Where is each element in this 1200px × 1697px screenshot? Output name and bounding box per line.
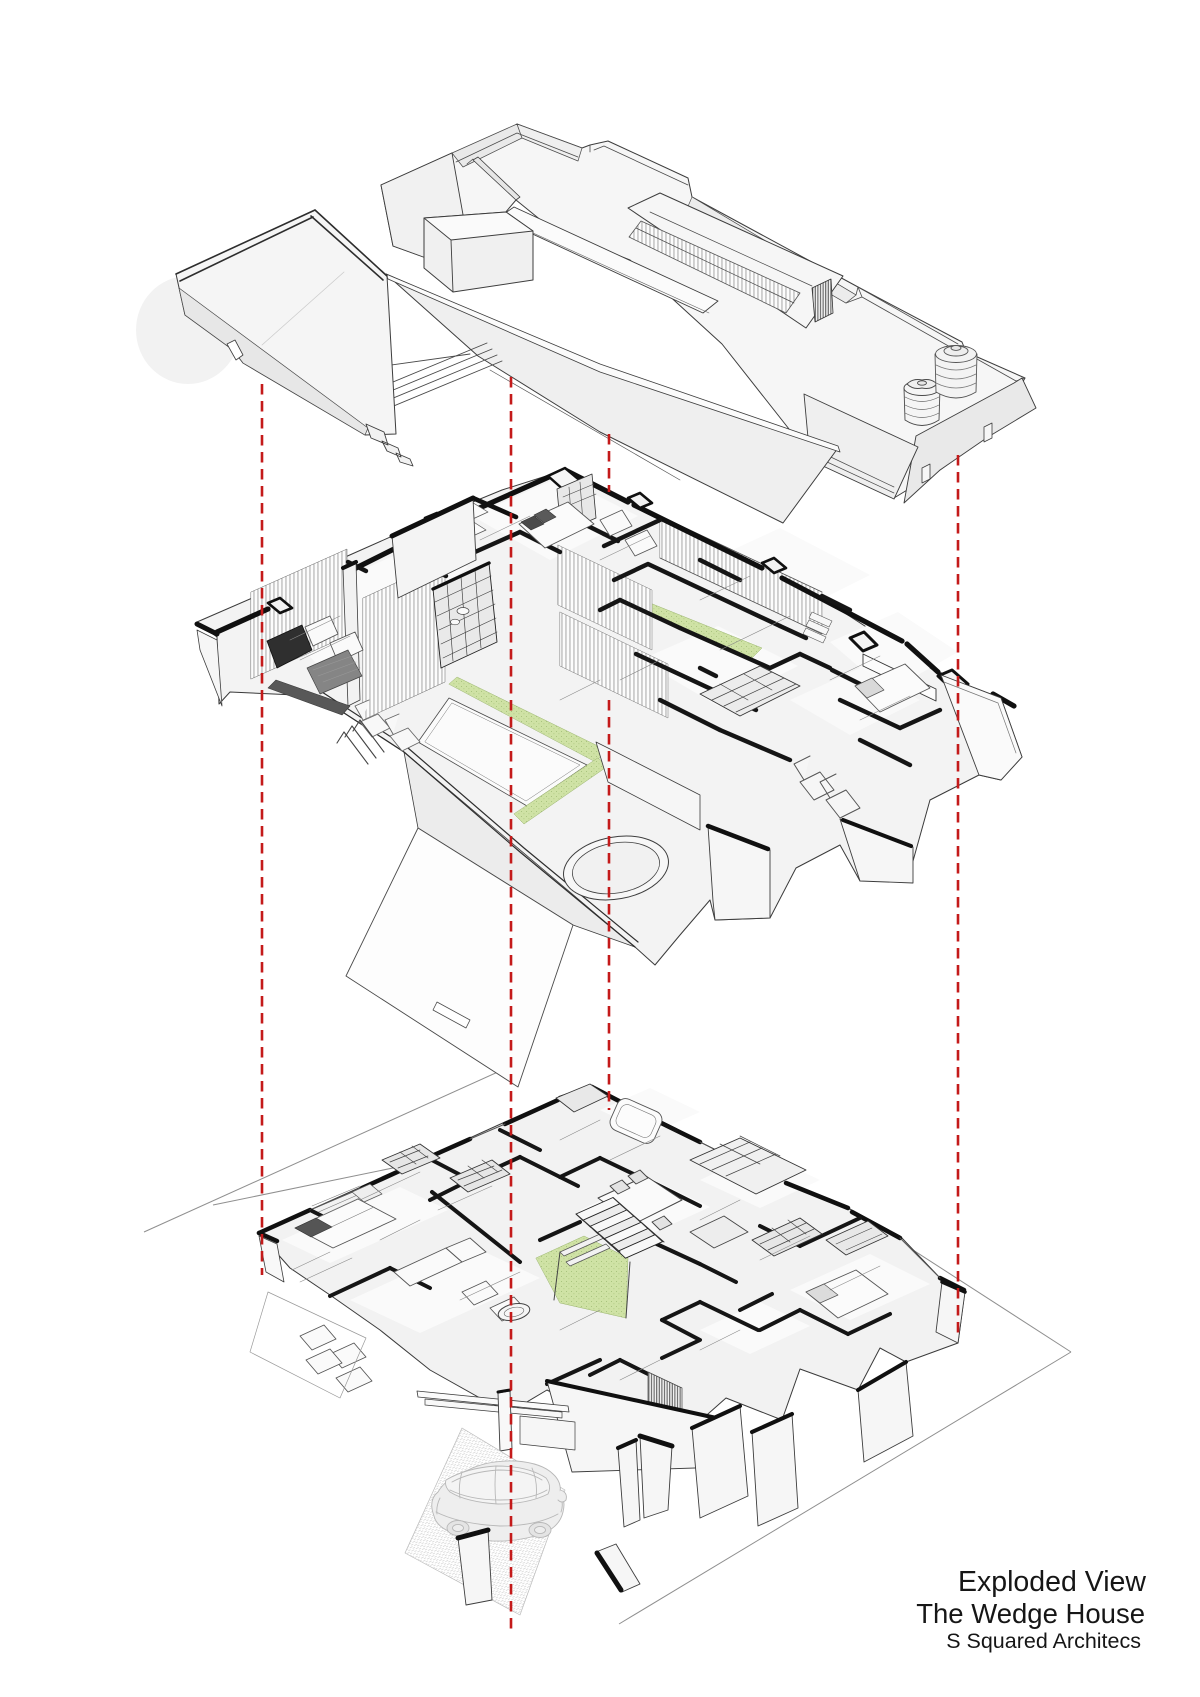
svg-text:The Wedge House: The Wedge House: [916, 1598, 1145, 1629]
svg-text:Exploded View: Exploded View: [958, 1566, 1146, 1598]
svg-text:S Squared Architecs: S Squared Architecs: [946, 1629, 1141, 1653]
